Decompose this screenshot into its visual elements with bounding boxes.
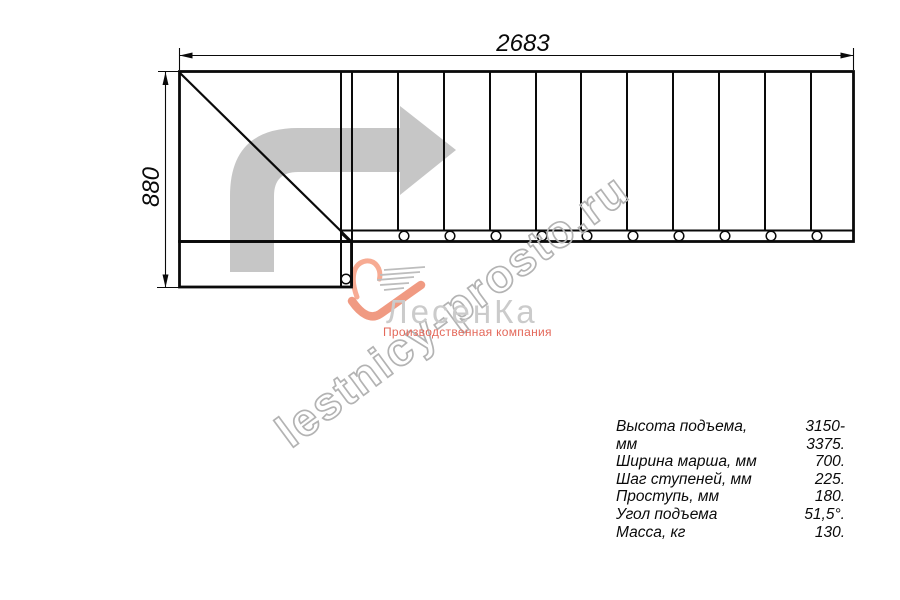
- spec-row-flight-width: Ширина марша, мм 700.: [616, 453, 845, 471]
- spec-label: Высота подъема, мм: [616, 418, 769, 453]
- spec-row-tread: Проступь, мм 180.: [616, 488, 845, 506]
- logo-subtitle: Производственная компания: [383, 325, 552, 339]
- spec-value: 180.: [815, 488, 845, 506]
- direction-arrow-icon: [230, 106, 456, 272]
- spec-row-height: Высота подъема, мм 3150-3375.: [616, 418, 845, 453]
- spec-row-step-pitch: Шаг ступеней, мм 225.: [616, 471, 845, 489]
- spec-label: Масса, кг: [616, 524, 685, 542]
- spec-value: 130.: [815, 524, 845, 542]
- stair-plan-drawing: 2683 880 lestnicy-prosto.ru ЛесенКа Прои…: [0, 0, 900, 600]
- spec-value: 700.: [815, 453, 845, 471]
- spec-table: Высота подъема, мм 3150-3375. Ширина мар…: [616, 418, 845, 541]
- spec-label: Проступь, мм: [616, 488, 719, 506]
- spec-label: Ширина марша, мм: [616, 453, 757, 471]
- spec-value: 225.: [815, 471, 845, 489]
- spec-label: Шаг ступеней, мм: [616, 471, 752, 489]
- height-dimension-label: 880: [138, 167, 166, 207]
- spec-label: Угол подъема: [616, 506, 717, 524]
- width-dimension-label: 2683: [496, 30, 549, 58]
- spec-value: 3150-3375.: [769, 418, 845, 453]
- spec-row-angle: Угол подъема 51,5°.: [616, 506, 845, 524]
- spec-row-mass: Масса, кг 130.: [616, 524, 845, 542]
- spec-value: 51,5°.: [804, 506, 845, 524]
